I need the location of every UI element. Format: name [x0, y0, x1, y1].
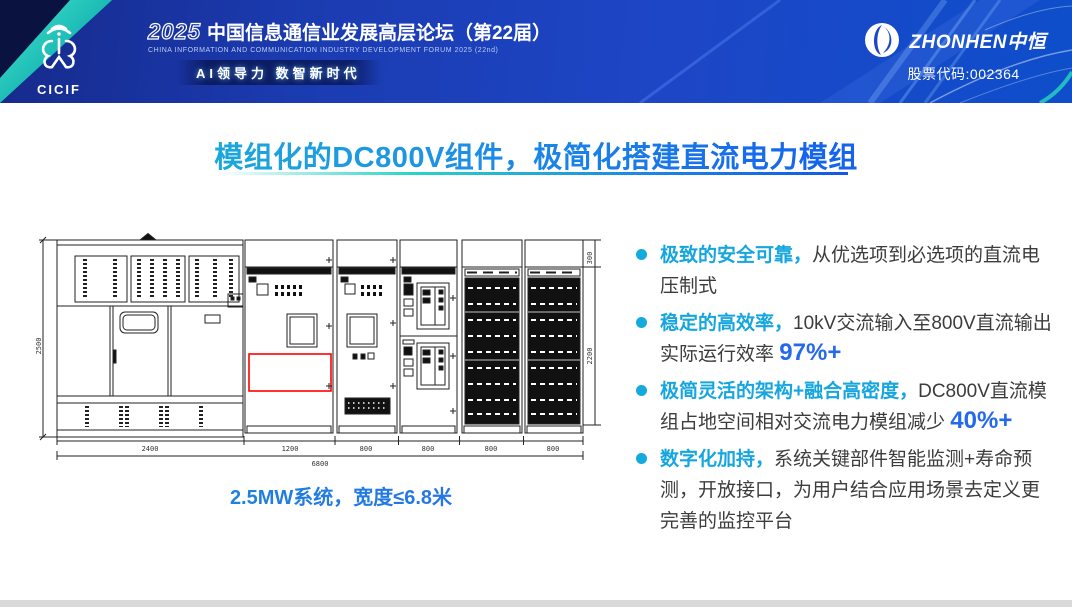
title-underline — [223, 172, 848, 175]
dim-bottom-label: 800 — [485, 445, 498, 453]
dim-bottom-label: 2400 — [142, 445, 159, 453]
bullet-item: 稳定的高效率，10kV交流输入至800V直流输出实际运行效率 97%+ — [634, 308, 1058, 370]
forum-title-block: 2025中国信息通信业发展高层论坛（第22届） CHINA INFORMATIO… — [148, 18, 551, 85]
bullet-item: 数字化加持，系统关键部件智能监测+寿命预测，开放接口，为用户结合应用场景去定义更… — [634, 444, 1058, 537]
red-highlight-box — [249, 354, 331, 391]
bullet-lead: 极致的安全可靠， — [660, 245, 812, 266]
bullet-icon — [636, 317, 647, 328]
bullet-highlight: 40%+ — [950, 407, 1012, 434]
company-name: ZHONHEN中恒 — [910, 27, 1046, 54]
bullet-icon — [636, 249, 647, 260]
feature-bullet-list: 极致的安全可靠，从优选项到必选项的直流电压制式 稳定的高效率，10kV交流输入至… — [634, 240, 1058, 543]
cabinet-drawing-svg: 2500 300 2200 2400 1200 800 800 800 800 … — [35, 228, 615, 473]
forum-title: 2025中国信息通信业发展高层论坛（第22届） — [148, 18, 551, 45]
cicif-logo: CICIF — [16, 20, 102, 92]
page-title: 模组化的DC800V组件，极简化搭建直流电力模组 — [0, 134, 1072, 176]
cicif-emblem-icon — [16, 20, 102, 76]
dim-total-label: 6800 — [312, 460, 329, 468]
company-block: ZHONHEN中恒 股票代码:002364 — [862, 20, 1046, 84]
bullet-icon — [636, 385, 647, 396]
forum-title-cn: 中国信息通信业发展高层论坛（第22届） — [207, 23, 551, 44]
dim-left-label: 2500 — [35, 338, 43, 355]
forum-title-en: CHINA INFORMATION AND COMMUNICATION INDU… — [148, 47, 551, 54]
header-banner: CICIF 2025中国信息通信业发展高层论坛（第22届） CHINA INFO… — [0, 0, 1072, 103]
drawing-caption: 2.5MW系统，宽度≤6.8米 — [35, 481, 647, 510]
cabinet-drawing: 2500 300 2200 2400 1200 800 800 800 800 … — [35, 228, 615, 473]
presentation-slide: CICIF 2025中国信息通信业发展高层论坛（第22届） CHINA INFO… — [0, 0, 1072, 607]
bottom-gray-strip — [0, 600, 1072, 607]
forum-year: 2025 — [148, 19, 201, 44]
bullet-lead: 稳定的高效率， — [660, 313, 793, 334]
dim-right-label: 2200 — [586, 348, 594, 365]
dim-top-right-label: 300 — [586, 252, 594, 265]
forum-tagline: AI领导力 数智新时代 — [176, 60, 381, 85]
bullet-item: 极致的安全可靠，从优选项到必选项的直流电压制式 — [634, 240, 1058, 302]
dim-bottom-label: 800 — [422, 445, 435, 453]
zhonhen-logo-icon — [862, 20, 902, 60]
bullet-highlight: 97%+ — [779, 339, 841, 366]
bullet-item: 极简灵活的架构+融合高密度，DC800V直流模组占地空间相对交流电力模组减少 4… — [634, 376, 1058, 438]
dim-bottom-label: 1200 — [282, 445, 299, 453]
bullet-icon — [636, 453, 647, 464]
cicif-acronym: CICIF — [16, 82, 102, 97]
bullet-lead: 极简灵活的架构+融合高密度， — [660, 381, 918, 402]
stock-code: 股票代码:002364 — [908, 64, 1046, 84]
dim-bottom-label: 800 — [360, 445, 373, 453]
dim-bottom-label: 800 — [547, 445, 560, 453]
bullet-lead: 数字化加持， — [660, 449, 774, 470]
